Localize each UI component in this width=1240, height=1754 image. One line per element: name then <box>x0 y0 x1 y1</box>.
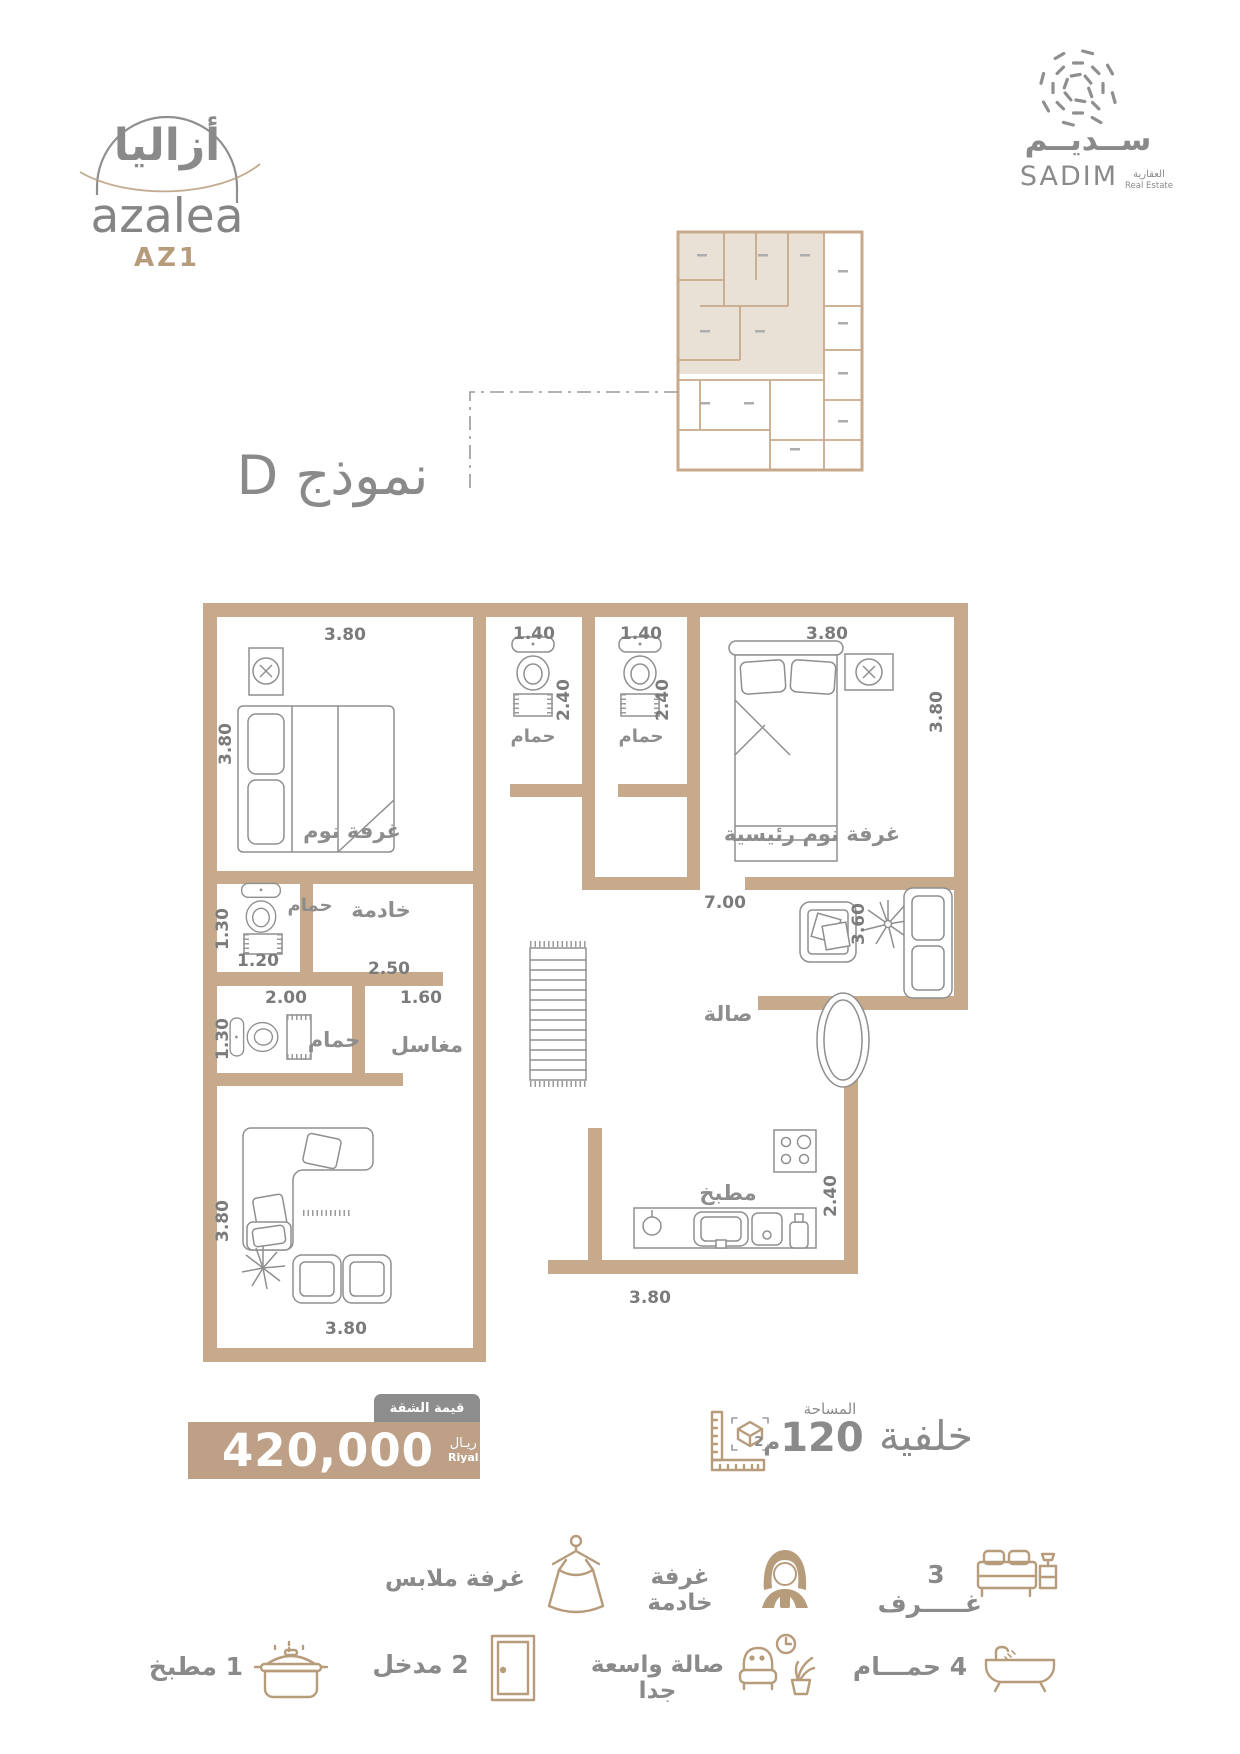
dim: 3.80 <box>927 691 947 733</box>
price-tab-label: قيمة الشقة <box>390 1401 465 1416</box>
feature-maid-room: غرفة خادمة <box>615 1564 745 1616</box>
brand-arabic: أزاليا <box>114 116 221 171</box>
dim: 1.40 <box>620 624 662 644</box>
maid-icon <box>762 1550 808 1608</box>
room-label-sinks: مغاسل <box>391 1033 463 1057</box>
feature-entrances-count: 2 مدخل <box>368 1650 473 1679</box>
door-icon <box>492 1636 534 1700</box>
ceiling-fan-icon <box>249 648 283 695</box>
dim: 2.50 <box>368 959 410 979</box>
bed-icon <box>978 1551 1056 1596</box>
dim: 2.40 <box>821 1175 841 1217</box>
dim: 3.60 <box>849 903 869 945</box>
developer-arabic: ســديــم <box>1025 122 1152 158</box>
armchair <box>800 902 856 962</box>
feature-rooms-count: 3 غـــــرف <box>890 1560 982 1618</box>
dim: 1.20 <box>237 951 279 971</box>
sofa <box>904 888 952 998</box>
dim: 3.80 <box>629 1288 671 1308</box>
main-floor-plan: 3.80 3.80 1.40 2.40 1.40 2.40 3.80 3.80 … <box>203 603 968 1362</box>
dim: 2.00 <box>265 988 307 1008</box>
feature-bathrooms-count: 4 حمـــام <box>850 1652 970 1681</box>
price-value: 420,000 <box>222 1428 434 1473</box>
room-label-bathroom: حمام <box>511 726 556 747</box>
area-number: 120 <box>780 1418 864 1458</box>
feature-spacious-hall: صالة واسعة جدا <box>570 1652 745 1704</box>
price-currency: ريـال Riyal <box>448 1437 479 1465</box>
dim: 1.30 <box>213 908 233 950</box>
toilet-icon <box>230 1018 278 1056</box>
room-label-bedroom: غرفة نوم <box>303 819 401 843</box>
dim: 1.60 <box>400 988 442 1008</box>
dim: 1.40 <box>513 624 555 644</box>
page-title: نموذج D <box>200 444 465 507</box>
rug <box>530 944 586 1084</box>
developer-name: SADIM <box>1020 161 1118 192</box>
area-position-label: خلفية <box>868 1412 984 1460</box>
ceiling-fan-icon <box>845 654 893 690</box>
room-label-kitchen: مطبخ <box>699 1181 756 1205</box>
unit-d-highlight <box>678 232 824 374</box>
brand-model: AZ1 <box>134 243 200 273</box>
dim: 7.00 <box>704 893 746 913</box>
dress-icon <box>549 1536 603 1612</box>
price-currency-ar: ريـال <box>448 1437 479 1452</box>
price-tab: قيمة الشقة <box>374 1394 480 1422</box>
dim: 1.30 <box>213 1018 233 1060</box>
brand-name: azalea <box>90 189 243 244</box>
sadim-logo: ســديــم SADIM العقارية Real Estate <box>1020 51 1173 192</box>
dim: 2.40 <box>653 679 673 721</box>
room-label-hall: صالة <box>704 1002 753 1026</box>
feature-kitchen-count: 1 مطبخ <box>140 1652 252 1681</box>
stove-icon <box>774 1130 816 1172</box>
armchair <box>293 1255 391 1303</box>
coffee-table <box>247 1222 291 1250</box>
sofa-icon <box>740 1635 814 1694</box>
plant-icon <box>242 1246 285 1289</box>
dim: 3.80 <box>325 1319 367 1339</box>
poster-canvas: أزاليا azalea AZ1 ســديــم SADIM العقاري… <box>0 0 1240 1754</box>
leader-dashed-line <box>470 392 678 492</box>
dim: 3.80 <box>806 624 848 644</box>
room-label-bathroom: حمام <box>308 1028 361 1052</box>
sadim-swirl-icon <box>1041 51 1115 125</box>
area-unit-sup: 2 <box>754 1429 763 1458</box>
room-label-master-bedroom: غرفة نوم رئيسية <box>724 822 900 846</box>
dim: 2.40 <box>554 679 574 721</box>
kitchen-counter <box>634 1208 816 1248</box>
room-label-bathroom: حمام <box>288 895 333 916</box>
toilet-icon <box>242 883 281 932</box>
azalea-logo: أزاليا azalea AZ1 <box>80 116 260 273</box>
dim: 3.80 <box>213 1200 233 1242</box>
bathtub-icon <box>986 1647 1054 1691</box>
toilet-icon <box>512 637 554 690</box>
mini-location-plan <box>470 232 862 492</box>
developer-tagline-en: Real Estate <box>1125 181 1173 191</box>
price-bar: 420,000 ريـال Riyal <box>188 1422 480 1479</box>
pot-icon <box>255 1642 327 1697</box>
room-label-maid: خادمة <box>351 898 411 922</box>
area-unit: م <box>763 1430 780 1458</box>
dim: 3.80 <box>324 625 366 645</box>
dim: 3.80 <box>216 723 236 765</box>
developer-tagline-ar: العقارية <box>1133 169 1165 180</box>
feature-dressing-room: غرفة ملابس <box>385 1566 525 1592</box>
price-currency-en: Riyal <box>448 1452 479 1465</box>
area-value: 120 م 2 <box>744 1418 874 1458</box>
room-label-bathroom: حمام <box>619 726 664 747</box>
